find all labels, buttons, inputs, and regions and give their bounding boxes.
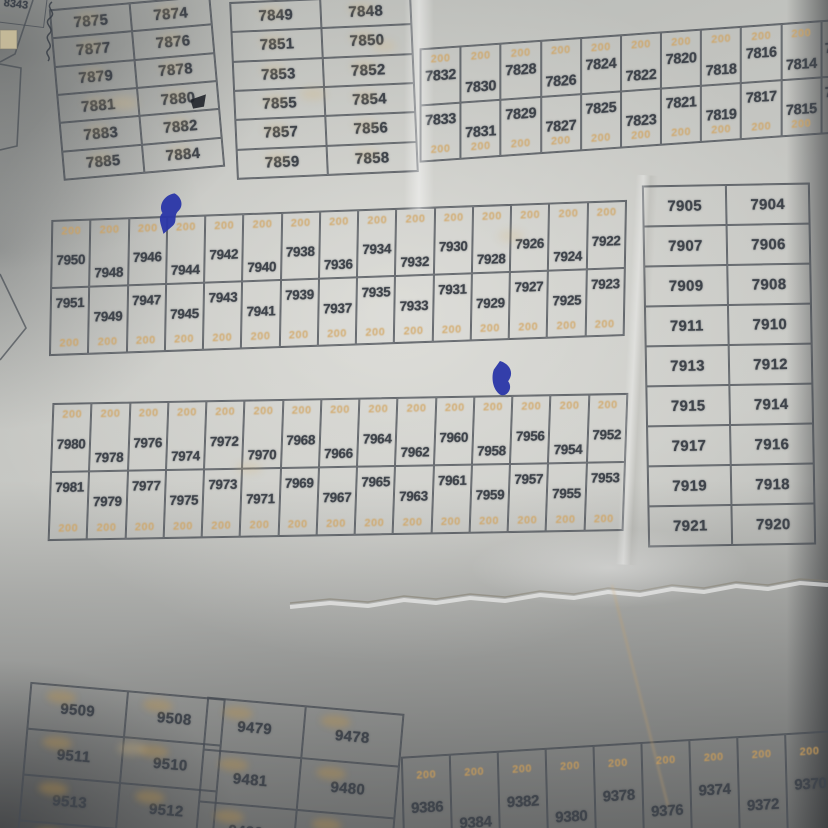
plot-cell: 2007938 — [281, 212, 320, 280]
area-label-200: 200 — [53, 225, 89, 238]
plot-number: 7908 — [752, 275, 787, 293]
plot-number: 7857 — [263, 124, 298, 142]
plot-number: 7963 — [395, 488, 432, 504]
plot-number: 7933 — [396, 298, 433, 314]
plot-block-7922-7951: 2007950200794820079462007944200794220079… — [49, 200, 627, 356]
plot-number: 7833 — [422, 111, 460, 130]
plot-cell: 2009376 — [641, 740, 692, 828]
area-label-200: 200 — [822, 114, 828, 129]
plot-cell: 2007819 — [701, 83, 741, 142]
area-label-200: 200 — [512, 209, 548, 222]
plot-number: 7859 — [265, 153, 300, 171]
plot-cell: 2007827 — [541, 94, 581, 153]
plot-number: 7880 — [160, 89, 196, 109]
plot-cell: 2007959 — [470, 464, 511, 533]
plot-number: 9386 — [404, 798, 450, 818]
plot-block-7849-7858: 7849784878517850785378527855785478577856… — [229, 0, 419, 180]
plot-block-9508-9513: 950995089511951095139512 — [14, 682, 225, 828]
plot-number: 7815 — [782, 101, 820, 120]
area-label-200: 200 — [435, 211, 471, 224]
area-label-200: 200 — [551, 400, 588, 413]
plot-cell: 2007824 — [581, 35, 621, 94]
plot-number: 9370 — [787, 774, 828, 794]
area-label-200: 200 — [432, 516, 469, 529]
plot-number: 7917 — [671, 437, 706, 455]
area-label-200: 200 — [595, 756, 641, 771]
area-label-200: 200 — [502, 136, 540, 151]
plot-cell: 7915 — [646, 385, 730, 426]
plot-number: 7852 — [351, 61, 386, 79]
plot-number: 7819 — [702, 106, 740, 125]
plot-cell: 7858 — [327, 142, 418, 175]
plot-cell: 2009384 — [450, 752, 501, 828]
area-label-200: 200 — [279, 518, 316, 531]
plot-number: 7816 — [742, 44, 780, 63]
plot-number: 7925 — [549, 292, 586, 308]
area-label-200: 200 — [550, 207, 586, 220]
plat-map-photo: 7875787478777876787978787881788078837882… — [0, 0, 828, 828]
plot-number: 7885 — [85, 152, 121, 172]
plot-number: 7929 — [472, 295, 509, 311]
plot-number: 7968 — [282, 432, 319, 448]
plot-number: 7976 — [129, 435, 166, 451]
plot-number: 9479 — [237, 718, 273, 738]
plot-number: 7977 — [128, 478, 165, 494]
plot-number: 7936 — [320, 256, 357, 272]
plot-number: 7935 — [358, 284, 395, 300]
plot-cell: 2007927 — [509, 271, 548, 339]
area-label-200: 200 — [321, 215, 357, 228]
plot-number: 7930 — [435, 238, 472, 254]
area-label-200: 200 — [742, 29, 780, 44]
plot-number: 9380 — [548, 807, 594, 827]
area-label-200: 200 — [130, 407, 167, 420]
area-label-200: 200 — [206, 219, 242, 232]
area-label-200: 200 — [283, 217, 319, 230]
plot-number: 7949 — [90, 308, 127, 324]
plot-number: 7972 — [206, 434, 243, 450]
plot-number: 7924 — [549, 248, 586, 264]
area-label-200: 200 — [169, 406, 206, 419]
plot-number: 7915 — [671, 397, 706, 415]
plot-cell: 7857 — [235, 116, 326, 149]
area-label-200: 200 — [403, 768, 449, 783]
plot-cell: 7909 — [644, 265, 728, 306]
plot-number: 7965 — [357, 474, 394, 490]
plot-cell: 2007935 — [356, 276, 395, 344]
area-label-200: 200 — [422, 142, 460, 157]
plot-number: 7939 — [281, 287, 318, 303]
plot-number: 7854 — [352, 90, 387, 108]
area-label-200: 200 — [207, 406, 244, 419]
plot-number: 7964 — [359, 431, 396, 447]
plot-cell: 2007957 — [508, 463, 549, 532]
plot-number: 7923 — [587, 276, 624, 292]
plot-number: 7913 — [670, 357, 705, 375]
plot-cell: 7914 — [729, 384, 813, 425]
plot-block-7904-7921: 7905790479077906790979087911791079137912… — [642, 183, 816, 548]
plot-cell: 2007960 — [434, 397, 475, 466]
plot-number: 7827 — [542, 117, 580, 136]
plot-number: 9478 — [334, 726, 370, 746]
plot-number: 7875 — [73, 11, 109, 31]
plot-number: 7851 — [259, 36, 294, 54]
plot-cell: 2007974 — [166, 401, 207, 470]
plot-number: 7918 — [755, 475, 790, 493]
plot-cell: 7851 — [232, 28, 323, 61]
plot-number: 7961 — [434, 473, 471, 489]
plot-cell: 2007942 — [204, 214, 243, 282]
plot-number: 7943 — [205, 289, 242, 305]
area-label-200: 200 — [397, 213, 433, 226]
plot-cell: 2007979 — [87, 471, 128, 540]
plot-cell: 2007944 — [166, 216, 205, 284]
plot-number: 7945 — [166, 306, 203, 322]
plot-number: 7958 — [473, 443, 510, 459]
plot-cell: 2007970 — [242, 400, 283, 469]
area-label-200: 200 — [582, 40, 620, 55]
plot-cell: 2007980 — [51, 403, 92, 472]
plot-number: 7909 — [669, 277, 704, 295]
plot-number: 7824 — [582, 55, 620, 74]
plot-number: 7820 — [662, 50, 700, 69]
area-label-200: 200 — [50, 522, 87, 535]
plot-number: 7881 — [80, 96, 116, 116]
plot-number: 9483 — [228, 822, 264, 828]
plot-number: 7848 — [348, 3, 383, 21]
plot-number: 7814 — [782, 55, 820, 74]
area-label-200: 200 — [662, 35, 700, 50]
plot-number: 7855 — [262, 94, 297, 112]
area-label-200: 200 — [130, 222, 166, 235]
plot-cell: 2007830 — [461, 44, 501, 103]
plot-number: 7927 — [511, 279, 548, 295]
plot-number: 7879 — [78, 67, 114, 87]
plot-number: 7975 — [165, 492, 202, 508]
plot-cell: 2009380 — [546, 746, 597, 828]
plot-number: 7960 — [435, 430, 472, 446]
plot-number: 7950 — [53, 252, 90, 268]
plot-cell: 2007929 — [471, 272, 510, 340]
plot-cell: 7852 — [323, 54, 414, 87]
plot-number: 9481 — [232, 770, 268, 790]
area-label-200: 200 — [88, 522, 125, 535]
plot-number: 7967 — [319, 490, 356, 506]
plot-number: 9384 — [452, 813, 498, 828]
area-label-200: 200 — [89, 335, 125, 348]
plot-cell: 2007937 — [318, 277, 357, 345]
plot-number: 7850 — [349, 32, 384, 50]
area-label-200: 200 — [356, 517, 393, 530]
plot-cell: 9478 — [301, 706, 403, 766]
plot-number: 7981 — [51, 479, 88, 495]
area-label-200: 200 — [92, 408, 129, 421]
plot-cell: 2007926 — [510, 204, 549, 272]
plot-number: 9480 — [330, 778, 366, 798]
plot-number: 7831 — [462, 123, 500, 142]
plot-cell: 9479 — [204, 698, 306, 758]
plot-number: 7910 — [752, 315, 787, 333]
plot-number: 7969 — [281, 475, 318, 491]
plot-number: 9376 — [644, 801, 690, 821]
plot-number: 7853 — [261, 65, 296, 83]
plot-cell: 9511 — [23, 729, 124, 783]
plot-cell: 7906 — [727, 224, 811, 265]
plot-cell: 7904 — [726, 184, 810, 225]
area-label-200: 200 — [357, 326, 393, 339]
plot-number: 7849 — [258, 6, 293, 24]
plot-number: 7940 — [243, 259, 280, 275]
plot-number: 7980 — [53, 436, 90, 452]
plot-cell: 2007832 — [421, 46, 461, 105]
plot-number: 7926 — [511, 236, 548, 252]
plot-cell: 2007968 — [281, 399, 322, 468]
area-label-200: 200 — [462, 49, 500, 64]
plot-cell: 7850 — [321, 24, 412, 57]
plot-block-9478-9483: 947994789481948094839482 — [193, 697, 404, 828]
area-label-200: 200 — [318, 518, 355, 531]
plot-number: 7905 — [667, 197, 702, 215]
area-label-200: 200 — [822, 24, 828, 39]
area-label-200: 200 — [394, 516, 431, 529]
plot-number: 7956 — [512, 428, 549, 444]
plot-cell: 7849 — [230, 0, 321, 32]
plot-cell: 2007956 — [510, 395, 551, 464]
plot-cell: 2009382 — [498, 749, 549, 828]
plot-cell: 2007936 — [319, 210, 358, 278]
area-label-200: 200 — [203, 520, 240, 533]
area-label-200: 200 — [359, 214, 395, 227]
plot-cell: 2007950 — [51, 220, 90, 288]
area-label-200: 200 — [168, 221, 204, 234]
plot-cell: 2009372 — [737, 734, 788, 828]
area-label-200: 200 — [472, 322, 508, 335]
plot-number: 9372 — [740, 795, 786, 815]
area-label-200: 200 — [589, 399, 626, 412]
plot-number: 7829 — [502, 105, 540, 124]
area-label-200: 200 — [398, 402, 435, 415]
plot-number: 9508 — [156, 709, 192, 729]
plot-number: 7948 — [91, 264, 128, 280]
plot-number: 7931 — [434, 281, 471, 297]
area-label-200: 200 — [782, 26, 820, 41]
plot-number: 7921 — [673, 517, 708, 535]
area-label-200: 200 — [513, 400, 550, 413]
plot-number: 7825 — [582, 99, 620, 118]
plot-number: 7877 — [75, 39, 111, 59]
plot-number: 7959 — [472, 487, 509, 503]
plot-number: 7907 — [668, 237, 703, 255]
plot-number: 7919 — [672, 477, 707, 495]
area-label-200: 200 — [739, 747, 785, 762]
plot-number: 7883 — [83, 124, 119, 144]
plot-cell: 2007826 — [541, 38, 581, 97]
plot-cell: 2007967 — [316, 467, 357, 536]
plot-cell: 2007928 — [472, 205, 511, 273]
plot-cell: 2007976 — [128, 402, 169, 471]
plot-cell: 7910 — [728, 304, 812, 345]
plot-cell: 7911 — [645, 305, 729, 346]
plot-cell: 7853 — [233, 58, 324, 91]
plot-number: 7971 — [242, 491, 279, 507]
plot-number: 78 — [813, 39, 828, 58]
plot-number: 7856 — [353, 120, 388, 138]
plot-number: 7914 — [754, 395, 789, 413]
plot-number: 7947 — [128, 292, 165, 308]
plot-block-7875-7884: 7875787478777876787978787881788078837882… — [49, 0, 225, 181]
plot-cell: 2007922 — [587, 201, 626, 269]
plot-cell: 2007940 — [242, 213, 281, 281]
plot-cell: 2009374 — [689, 737, 740, 828]
plot-number: 9512 — [148, 800, 184, 820]
plot-cell: 2007823 — [621, 89, 661, 148]
area-label-200: 200 — [283, 404, 320, 417]
plot-cell: 2007981 — [49, 471, 90, 540]
plot-cell: 2007964 — [357, 398, 398, 467]
area-label-200: 200 — [742, 119, 780, 134]
area-label-200: 200 — [547, 514, 584, 527]
plot-number: 7912 — [753, 355, 788, 373]
plot-cell: 7916 — [730, 424, 814, 465]
plot-number: 7916 — [754, 435, 789, 453]
plot-number: 9510 — [152, 754, 188, 774]
area-label-200: 200 — [786, 744, 828, 759]
plot-cell: 9509 — [27, 683, 128, 737]
area-label-200: 200 — [241, 519, 278, 532]
plot-cell: 2007828 — [501, 41, 541, 100]
plot-number: 7884 — [165, 145, 201, 165]
plot-number: 7953 — [587, 470, 624, 486]
area-label-200: 200 — [548, 319, 584, 332]
area-label-200: 200 — [691, 750, 737, 765]
plot-number: 7817 — [742, 88, 780, 107]
plot-strip-9370-9386: 2009386200938420093822009380200937820093… — [401, 727, 828, 828]
plot-number: 7942 — [205, 246, 242, 262]
plot-cell: 2007825 — [581, 91, 621, 150]
plot-cell: 20078 — [821, 75, 828, 134]
plot-number: 7934 — [358, 241, 395, 257]
plot-cell: 2007955 — [546, 463, 587, 532]
area-label-200: 200 — [242, 330, 278, 343]
plot-cell: 9513 — [19, 775, 120, 828]
plot-cell: 7921 — [648, 505, 732, 546]
area-label-200: 200 — [502, 46, 540, 61]
area-label-200: 200 — [281, 329, 317, 342]
area-label-200: 200 — [510, 321, 546, 334]
plot-number: 7941 — [243, 303, 280, 319]
plot-number: 7954 — [550, 442, 587, 458]
area-label-200: 200 — [244, 218, 280, 231]
area-label-200: 200 — [471, 515, 508, 528]
plot-number: 7978 — [91, 450, 128, 466]
plot-number: 7878 — [158, 60, 194, 80]
plot-cell: 2007945 — [165, 283, 204, 351]
plot-number: 7938 — [282, 244, 319, 260]
plot-cell: 2007977 — [125, 470, 166, 539]
plot-number: 7966 — [320, 446, 357, 462]
plot-number: 7922 — [588, 233, 625, 249]
area-label-200: 200 — [165, 520, 202, 533]
plot-cell: 2007954 — [548, 395, 589, 464]
plot-strip-7814-7833: 2007832200783020078282007826200782420078… — [420, 17, 828, 162]
plot-number: 7882 — [163, 117, 199, 137]
plot-cell: 2007924 — [548, 202, 587, 270]
plot-cell: 2007923 — [585, 268, 624, 336]
plot-number: 7876 — [155, 32, 191, 52]
plot-cell: 2007975 — [163, 469, 204, 538]
plot-number: 9511 — [56, 746, 91, 766]
plot-number: 7970 — [244, 447, 281, 463]
plot-cell: 7908 — [727, 264, 811, 305]
plot-cell: 2009370 — [785, 731, 828, 828]
plot-cell: 7859 — [237, 146, 328, 179]
area-label-200: 200 — [475, 401, 512, 414]
plot-number: 7911 — [670, 317, 704, 335]
plot-cell: 7912 — [729, 344, 813, 385]
area-label-200: 200 — [582, 131, 620, 146]
plot-number: 7962 — [397, 444, 434, 460]
plot-cell: 2007930 — [434, 206, 473, 274]
plot-cell: 2007831 — [461, 100, 501, 159]
area-label-200: 200 — [54, 408, 91, 421]
area-label-200: 200 — [436, 402, 473, 415]
plot-cell: 2007969 — [278, 467, 319, 536]
area-label-200: 200 — [204, 331, 240, 344]
area-label-200: 200 — [585, 513, 622, 526]
plot-number: 7818 — [702, 61, 740, 80]
area-label-200: 200 — [643, 753, 689, 768]
plot-cell: 2007958 — [472, 396, 513, 465]
plot-number: 7932 — [396, 254, 433, 270]
plot-number: 7904 — [750, 195, 785, 213]
area-label-200: 200 — [509, 514, 546, 527]
plot-cell: 7907 — [644, 225, 728, 266]
plot-number: 9374 — [691, 780, 737, 800]
plot-cell: 7918 — [731, 464, 815, 505]
plot-number: 7952 — [588, 427, 625, 443]
area-label-200: 200 — [245, 405, 282, 418]
plot-number: 7937 — [319, 300, 356, 316]
plot-cell: 7920 — [731, 504, 815, 545]
plot-cell: 2007943 — [203, 281, 242, 349]
plot-number: 7955 — [548, 486, 585, 502]
plot-cell: 2007963 — [393, 465, 434, 534]
plot-cell: 9481 — [199, 750, 301, 810]
plot-number: 7906 — [751, 235, 786, 253]
corner-plot-number: 8343 — [3, 0, 29, 12]
area-label-200: 200 — [662, 125, 700, 140]
plot-number: 7821 — [662, 94, 700, 113]
plot-cell: 7855 — [234, 87, 325, 120]
plot-number: 7946 — [129, 249, 166, 265]
plot-cell: 2007829 — [501, 97, 541, 156]
plot-cell: 20078 — [821, 18, 828, 77]
area-label-200: 200 — [395, 325, 431, 338]
area-label-200: 200 — [51, 337, 87, 350]
plot-cell: 7919 — [648, 465, 732, 506]
plot-cell: 7913 — [646, 345, 730, 386]
area-label-200: 200 — [702, 32, 740, 47]
plot-cell: 2007961 — [431, 465, 472, 534]
area-label-200: 200 — [126, 521, 163, 534]
area-label-200: 200 — [422, 52, 460, 67]
plot-number: 7974 — [167, 448, 204, 464]
area-label-200: 200 — [322, 404, 359, 417]
plot-cell: 2007941 — [241, 280, 280, 348]
area-label-200: 200 — [588, 206, 624, 219]
plot-cell: 2007966 — [319, 399, 360, 468]
plot-number: 7823 — [622, 112, 660, 131]
